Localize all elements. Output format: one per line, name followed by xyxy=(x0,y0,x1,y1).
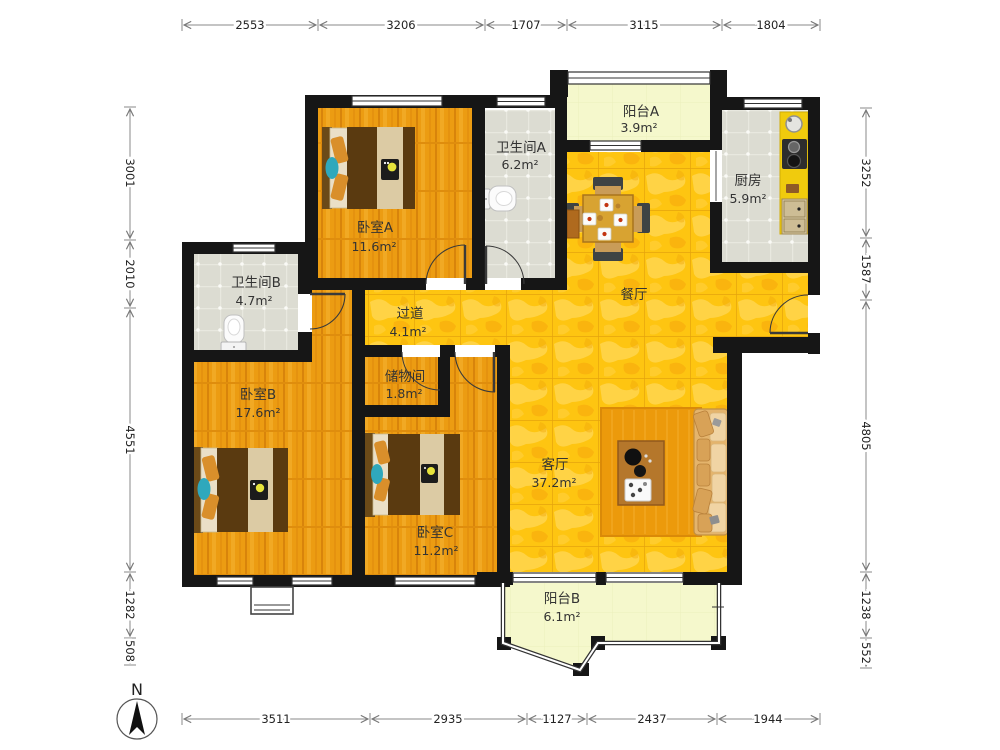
dim-top-3: 1707 xyxy=(511,18,540,32)
dim-left-5: 508 xyxy=(123,640,137,662)
room-label-bedroom-b: 卧室B xyxy=(240,386,276,403)
console-table xyxy=(567,210,579,238)
bed-b xyxy=(193,447,288,533)
dim-left-1: 3001 xyxy=(123,158,137,187)
toilet-bath-b xyxy=(221,315,246,353)
kitchen-counter xyxy=(780,112,808,234)
balcony-a-window xyxy=(568,72,710,84)
room-area-storage: 1.8m² xyxy=(385,386,422,401)
dim-bottom-1: 3511 xyxy=(261,712,290,726)
dim-top-5: 1804 xyxy=(756,18,785,32)
dim-bottom-2: 2935 xyxy=(433,712,462,726)
dim-right: 3252 1587 4805 1238 552 xyxy=(859,108,873,668)
dim-top-4: 3115 xyxy=(629,18,658,32)
room-label-hallway: 过道 xyxy=(397,306,424,322)
dim-bottom-4: 2437 xyxy=(637,712,666,726)
room-area-bedroom-c: 11.2m² xyxy=(413,543,458,558)
toilet-bath-a xyxy=(482,186,516,211)
dim-bottom: 3511 2935 1127 2437 1944 xyxy=(182,712,820,726)
compass-label: N xyxy=(131,680,143,699)
dim-right-4: 1238 xyxy=(859,590,873,619)
bedroom-b-window-1 xyxy=(217,577,253,585)
dim-left-2: 2010 xyxy=(123,259,137,288)
room-label-bath-b: 卫生间B xyxy=(231,275,281,291)
floor-plan-canvas: 阳台A 3.9m² 卫生间A 6.2m² 卧室A 11.6m² 厨房 5.9m²… xyxy=(0,0,1000,750)
room-area-bedroom-b: 17.6m² xyxy=(235,405,280,420)
room-label-balcony-a: 阳台A xyxy=(623,104,660,120)
dim-left-4: 1282 xyxy=(123,590,137,619)
living-room-set xyxy=(601,408,728,536)
dim-right-1: 3252 xyxy=(859,158,873,187)
room-label-storage: 储物间 xyxy=(385,369,426,385)
vestibule-floor xyxy=(312,290,352,575)
room-area-bedroom-a: 11.6m² xyxy=(351,239,396,254)
kitchen-window xyxy=(744,99,802,108)
room-label-bedroom-a: 卧室A xyxy=(357,219,394,236)
room-area-balcony-b: 6.1m² xyxy=(543,609,580,624)
room-area-balcony-a: 3.9m² xyxy=(620,120,657,135)
room-label-kitchen: 厨房 xyxy=(735,173,762,189)
room-area-living: 37.2m² xyxy=(531,475,576,490)
room-area-kitchen: 5.9m² xyxy=(729,191,766,206)
room-area-bath-b: 4.7m² xyxy=(235,293,272,308)
dim-left: 3001 2010 4551 1282 508 xyxy=(123,107,137,665)
living-balcony-slider xyxy=(606,573,683,582)
room-label-living: 客厅 xyxy=(542,456,569,473)
balcony-b-floor xyxy=(503,583,719,670)
bedroom-b-window-2 xyxy=(292,577,332,585)
bed-c xyxy=(365,433,460,517)
living-balcony-window xyxy=(513,573,596,582)
dim-right-5: 552 xyxy=(859,642,873,664)
dim-bottom-5: 1944 xyxy=(753,712,782,726)
compass: N xyxy=(117,680,157,739)
room-label-balcony-b: 阳台B xyxy=(544,591,580,607)
bath-a-window xyxy=(497,97,545,106)
dim-bottom-3: 1127 xyxy=(542,712,571,726)
balcony-a-inner-window xyxy=(590,141,641,150)
room-label-dining: 餐厅 xyxy=(621,287,648,303)
room-area-bath-a: 6.2m² xyxy=(501,157,538,172)
dim-top-2: 3206 xyxy=(386,18,415,32)
dim-top-1: 2553 xyxy=(235,18,264,32)
dim-right-3: 4805 xyxy=(859,421,873,450)
entry-corridor-floor xyxy=(710,272,808,337)
bedroom-c-window xyxy=(395,577,475,585)
floor-plan-page: 阳台A 3.9m² 卫生间A 6.2m² 卧室A 11.6m² 厨房 5.9m²… xyxy=(0,0,1000,750)
room-area-hallway: 4.1m² xyxy=(389,324,426,339)
room-label-bedroom-c: 卧室C xyxy=(417,524,453,541)
dim-left-3: 4551 xyxy=(123,425,137,454)
bedroom-b-bay-window xyxy=(251,587,293,614)
bedroom-a-window xyxy=(352,96,442,106)
bed-a xyxy=(322,127,415,209)
room-label-bath-a: 卫生间A xyxy=(496,140,546,156)
dim-top: 2553 3206 1707 3115 1804 xyxy=(182,18,820,32)
dim-right-2: 1587 xyxy=(859,254,873,283)
bath-b-window xyxy=(233,244,275,252)
